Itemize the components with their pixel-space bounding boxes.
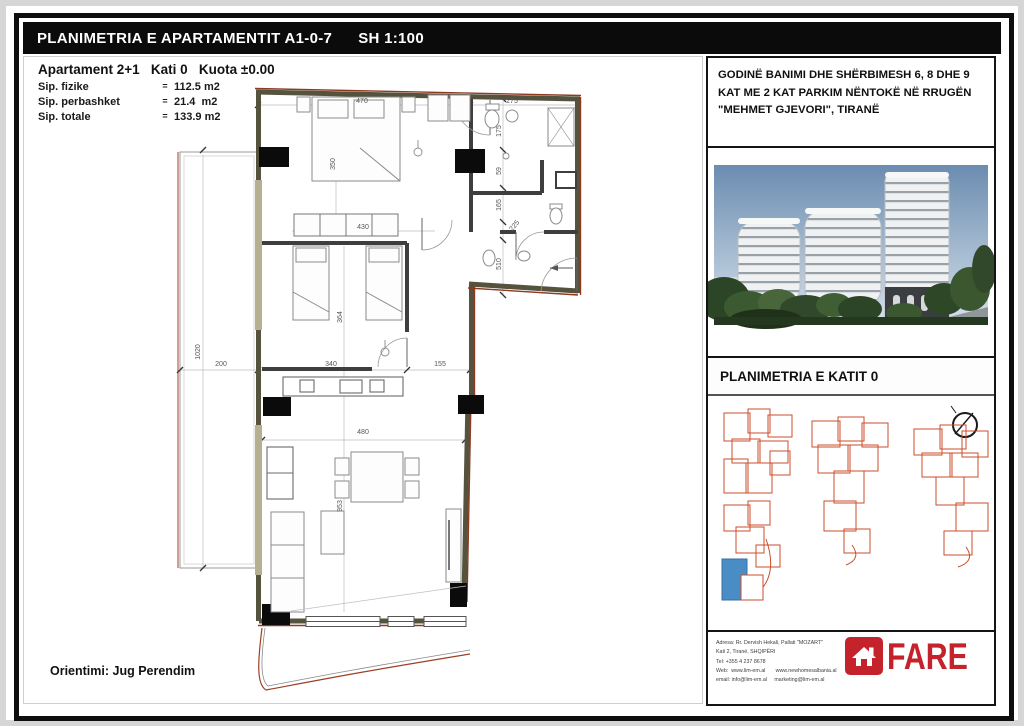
project-title-box: GODINË BANIMI DHE SHËRBIMESH 6, 8 DHE 9 …: [708, 58, 994, 148]
info-label: Sip. fizike: [38, 81, 156, 93]
info-label: Sip. totale: [38, 111, 156, 123]
fare-house-icon: [844, 636, 884, 676]
apartment-heading: Apartament 2+1 Kati 0 Kuota ±0.00: [38, 62, 268, 77]
project-title: GODINË BANIMI DHE SHËRBIMESH 6, 8 DHE 9 …: [718, 69, 971, 116]
site-plan-title-bar: PLANIMETRIA E KATIT 0: [708, 358, 994, 396]
site-plan-title: PLANIMETRIA E KATIT 0: [720, 369, 878, 384]
info-value: 112.5 m2: [174, 81, 220, 93]
site-plan-drawing: [708, 396, 994, 630]
info-row-perbashket: Sip. perbashket = 21.4 m2: [38, 96, 268, 108]
equals-sign: =: [156, 96, 174, 108]
panel-footer: Adresa: Rr. Dervish Hekali, Pallati "MOZ…: [708, 632, 994, 704]
fare-logo: FARE: [844, 636, 986, 676]
info-label: Sip. perbashket: [38, 96, 156, 108]
building-cluster-b: [812, 417, 888, 565]
building-render-image: [708, 148, 994, 356]
page-title: PLANIMETRIA E APARTAMENTIT A1-0-7: [37, 30, 332, 47]
info-value: 133.9 m2: [174, 111, 220, 123]
info-row-fizike: Sip. fizike = 112.5 m2: [38, 81, 268, 93]
floor-plan-area: [23, 56, 703, 704]
info-value: 21.4 m2: [174, 96, 217, 108]
apartment-info: Apartament 2+1 Kati 0 Kuota ±0.00 Sip. f…: [38, 62, 268, 123]
orientation-label: Orientimi: Jug Perendim: [50, 664, 195, 678]
address-block: Adresa: Rr. Dervish Hekali, Pallati "MOZ…: [716, 639, 837, 685]
building-cluster-d: [722, 501, 780, 600]
plan-sheet-page: { "colors": { "frame_black": "#0e0e0e", …: [0, 0, 1024, 726]
building-cluster-c: [914, 425, 988, 567]
north-compass: [951, 406, 977, 437]
right-panel: GODINË BANIMI DHE SHËRBIMESH 6, 8 DHE 9 …: [706, 56, 996, 706]
building-cluster-a: [724, 409, 792, 493]
building-render-box: [708, 148, 994, 358]
title-bar: PLANIMETRIA E APARTAMENTIT A1-0-7 SH 1:1…: [23, 22, 1001, 54]
site-plan-box: [708, 396, 994, 632]
drawing-scale: SH 1:100: [358, 30, 424, 47]
fare-logo-text: FARE: [887, 638, 968, 675]
info-row-totale: Sip. totale = 133.9 m2: [38, 111, 268, 123]
equals-sign: =: [156, 81, 174, 93]
equals-sign: =: [156, 111, 174, 123]
